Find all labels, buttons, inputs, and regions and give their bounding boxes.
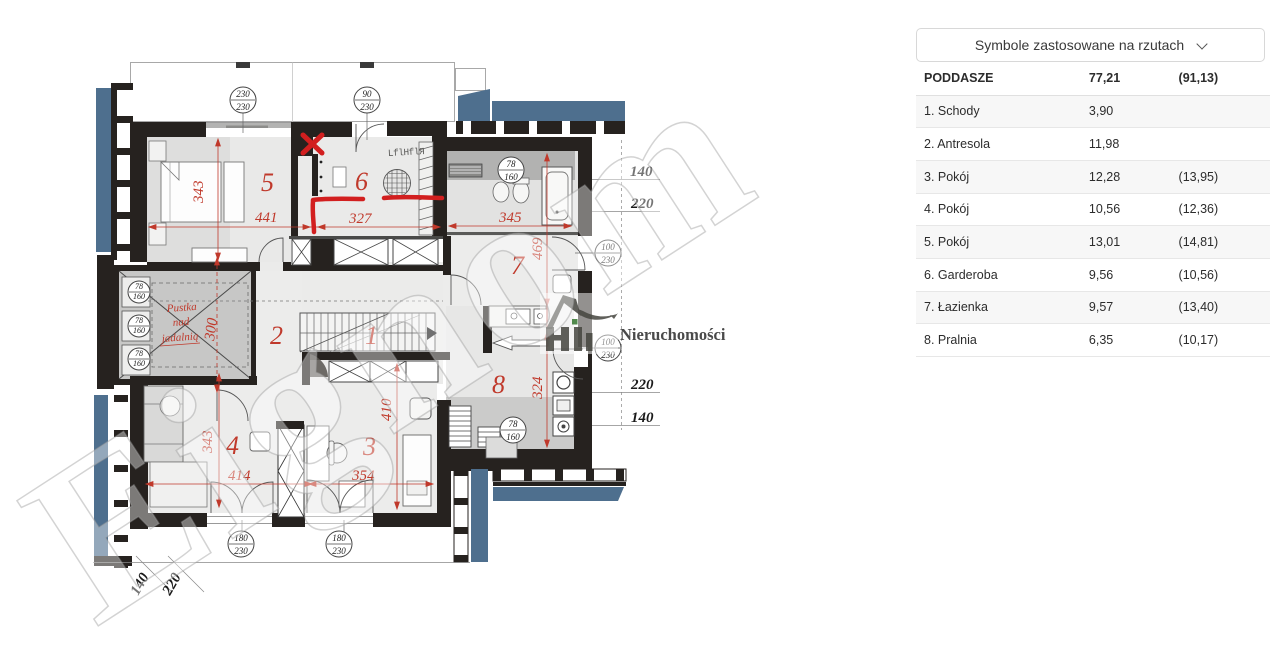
svg-text:441: 441 xyxy=(255,210,278,226)
svg-text:160: 160 xyxy=(133,292,145,301)
svg-text:160: 160 xyxy=(506,432,520,442)
svg-text:220: 220 xyxy=(630,377,654,393)
svg-text:230: 230 xyxy=(332,546,346,556)
svg-text:Pustka: Pustka xyxy=(165,301,197,315)
svg-text:90: 90 xyxy=(363,89,373,99)
svg-text:140: 140 xyxy=(631,410,654,426)
svg-text:180: 180 xyxy=(332,533,346,543)
svg-text:160: 160 xyxy=(133,326,145,335)
svg-text:78: 78 xyxy=(509,419,519,429)
svg-text:343: 343 xyxy=(191,181,207,205)
svg-text:5: 5 xyxy=(261,168,274,197)
svg-text:LflHflЯ: LflHflЯ xyxy=(388,146,425,159)
svg-text:230: 230 xyxy=(236,102,250,112)
svg-text:78: 78 xyxy=(135,282,143,291)
svg-text:230: 230 xyxy=(360,102,374,112)
svg-text:78: 78 xyxy=(135,316,143,325)
svg-text:6: 6 xyxy=(355,167,368,196)
svg-text:230: 230 xyxy=(236,89,250,99)
